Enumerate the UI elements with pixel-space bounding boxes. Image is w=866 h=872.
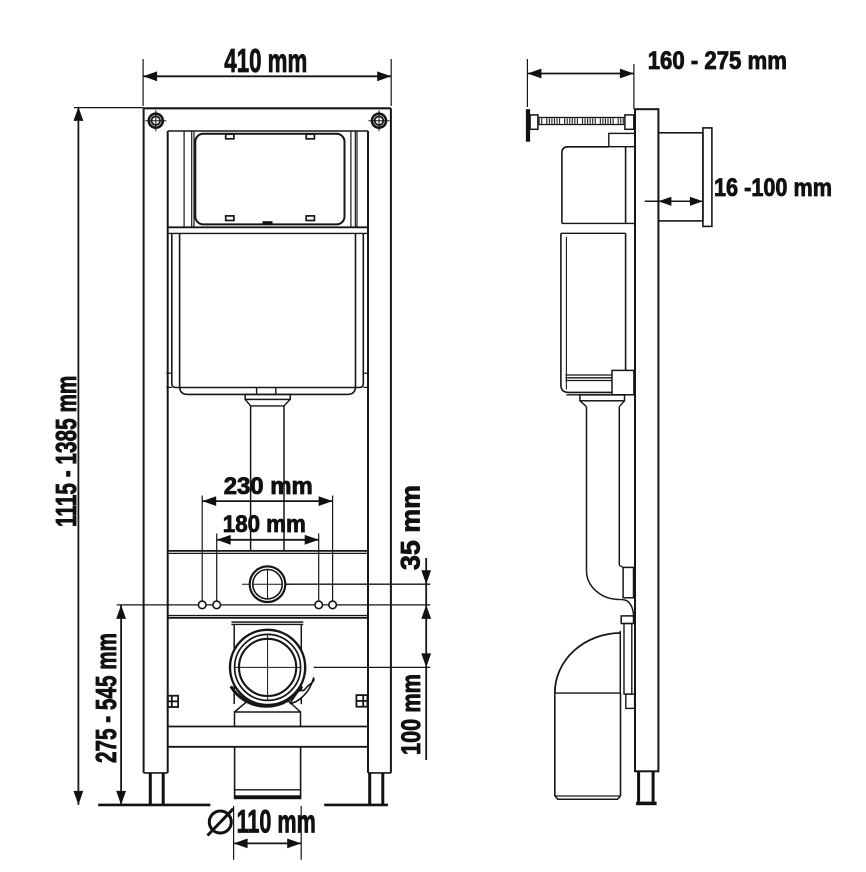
svg-text:275 - 545 mm: 275 - 545 mm <box>91 633 123 763</box>
svg-text:110 mm: 110 mm <box>237 804 316 840</box>
svg-text:35 mm: 35 mm <box>396 485 426 570</box>
svg-text:180 mm: 180 mm <box>223 511 306 538</box>
svg-text:160 - 275 mm: 160 - 275 mm <box>648 47 787 75</box>
svg-text:230 mm: 230 mm <box>224 473 313 500</box>
svg-text:100 mm: 100 mm <box>396 674 426 755</box>
svg-text:410 mm: 410 mm <box>224 42 307 79</box>
svg-text:16 -100 mm: 16 -100 mm <box>714 174 832 202</box>
svg-text:1115 - 1385 mm: 1115 - 1385 mm <box>51 376 83 527</box>
